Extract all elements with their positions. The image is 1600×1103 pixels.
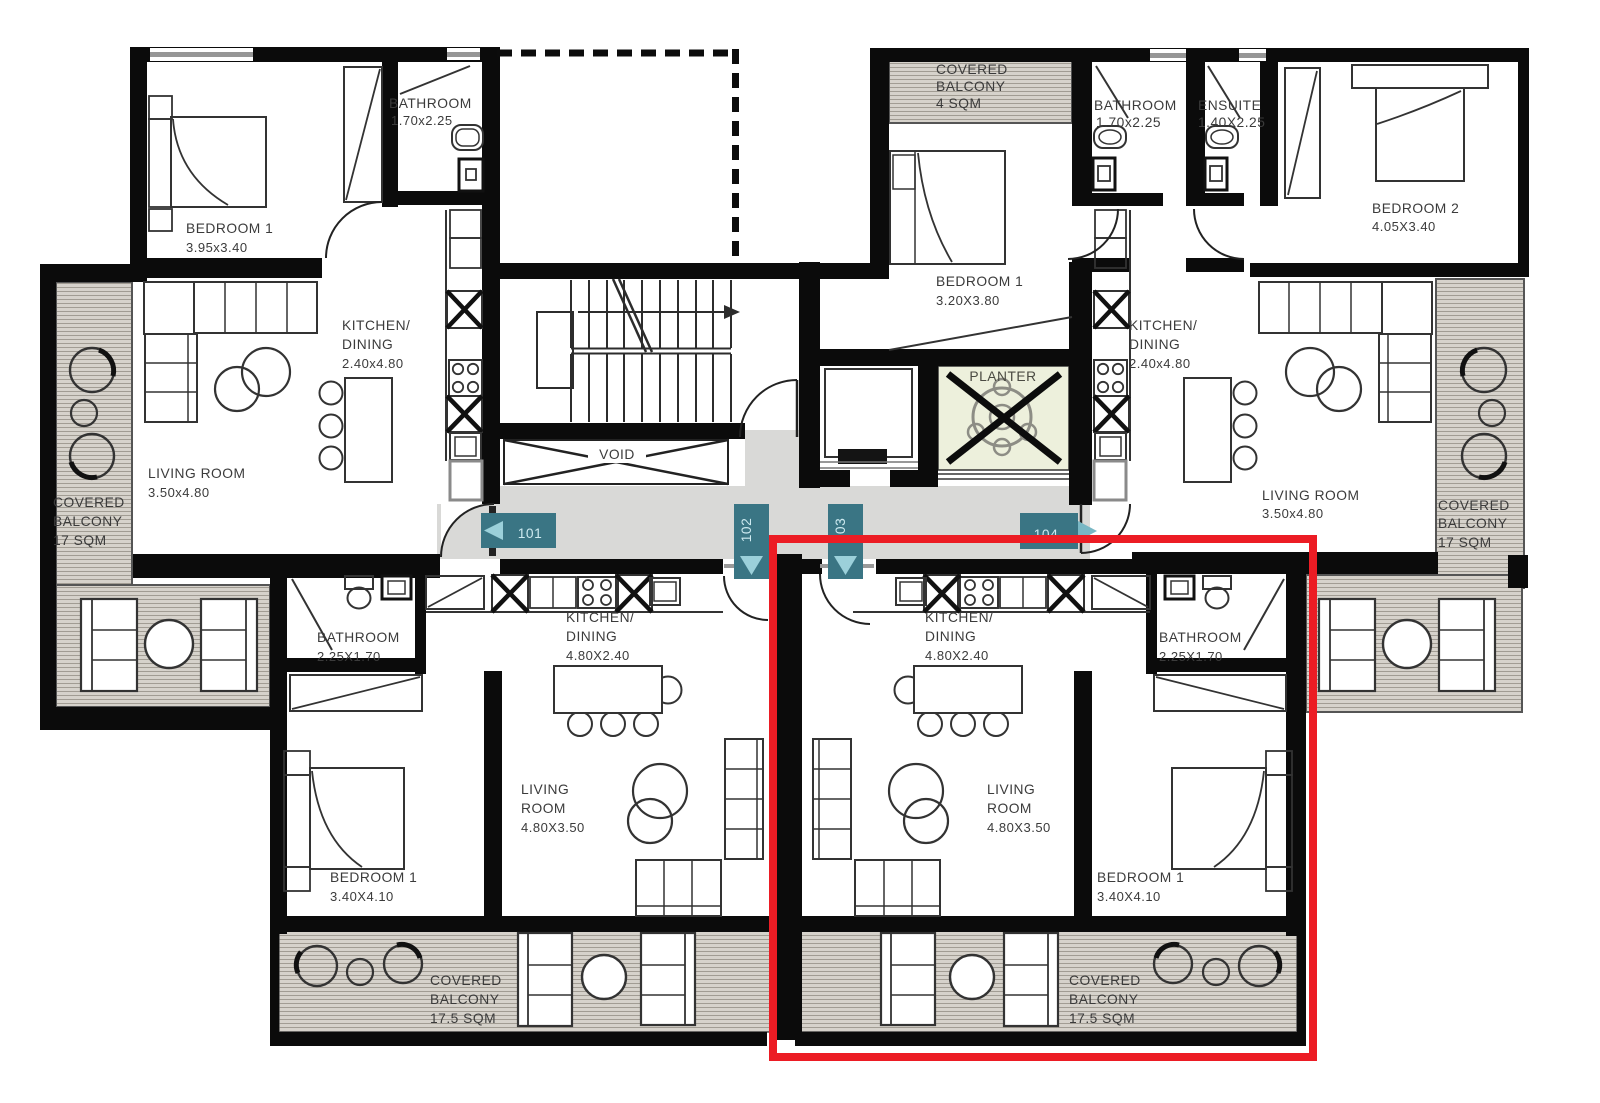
svg-text:BEDROOM 1: BEDROOM 1 xyxy=(186,221,273,236)
svg-text:BEDROOM 1: BEDROOM 1 xyxy=(936,274,1023,289)
svg-text:3.50x4.80: 3.50x4.80 xyxy=(148,485,210,500)
svg-text:3.95x3.40: 3.95x3.40 xyxy=(186,240,248,255)
svg-text:BATHROOM: BATHROOM xyxy=(389,96,472,111)
svg-text:COVERED: COVERED xyxy=(1438,498,1510,513)
svg-text:PLANTER: PLANTER xyxy=(969,369,1036,384)
svg-text:KITCHEN/: KITCHEN/ xyxy=(342,318,410,333)
svg-text:DINING: DINING xyxy=(566,629,617,644)
svg-text:1.70x2.25: 1.70x2.25 xyxy=(1096,115,1161,130)
svg-text:BATHROOM: BATHROOM xyxy=(1094,98,1177,113)
svg-text:BATHROOM: BATHROOM xyxy=(317,630,400,645)
svg-text:KITCHEN/: KITCHEN/ xyxy=(566,610,634,625)
svg-text:4 SQM: 4 SQM xyxy=(936,96,981,111)
svg-text:BEDROOM 2: BEDROOM 2 xyxy=(1372,201,1459,216)
svg-text:ROOM: ROOM xyxy=(987,801,1032,816)
svg-text:LIVING: LIVING xyxy=(987,782,1035,797)
svg-text:BALCONY: BALCONY xyxy=(53,514,122,529)
svg-text:COVERED: COVERED xyxy=(430,973,502,988)
svg-text:17 SQM: 17 SQM xyxy=(53,533,107,548)
svg-text:2.40x4.80: 2.40x4.80 xyxy=(342,356,404,371)
svg-text:ROOM: ROOM xyxy=(521,801,566,816)
svg-text:4.05X3.40: 4.05X3.40 xyxy=(1372,219,1436,234)
svg-text:3.50x4.80: 3.50x4.80 xyxy=(1262,506,1324,521)
svg-text:101: 101 xyxy=(518,526,543,541)
svg-text:KITCHEN/: KITCHEN/ xyxy=(1129,318,1197,333)
svg-text:KITCHEN/: KITCHEN/ xyxy=(925,610,993,625)
svg-text:BALCONY: BALCONY xyxy=(1069,992,1138,1007)
svg-text:3.40X4.10: 3.40X4.10 xyxy=(330,889,394,904)
svg-text:1.70x2.25: 1.70x2.25 xyxy=(391,113,453,128)
svg-text:4.80X2.40: 4.80X2.40 xyxy=(925,648,989,663)
svg-text:COVERED: COVERED xyxy=(936,62,1008,77)
svg-text:COVERED: COVERED xyxy=(53,495,125,510)
svg-text:2.40x4.80: 2.40x4.80 xyxy=(1129,356,1191,371)
svg-text:4.80X2.40: 4.80X2.40 xyxy=(566,648,630,663)
svg-text:2.25X1.70: 2.25X1.70 xyxy=(1159,649,1223,664)
svg-text:BATHROOM: BATHROOM xyxy=(1159,630,1242,645)
svg-text:102: 102 xyxy=(739,518,754,543)
svg-text:4.80X3.50: 4.80X3.50 xyxy=(521,820,585,835)
svg-text:LIVING ROOM: LIVING ROOM xyxy=(148,466,246,481)
svg-text:1.40X2.25: 1.40X2.25 xyxy=(1198,115,1265,130)
svg-text:DINING: DINING xyxy=(342,337,393,352)
svg-text:BALCONY: BALCONY xyxy=(1438,516,1507,531)
svg-text:ENSUITE: ENSUITE xyxy=(1198,98,1261,113)
svg-text:BEDROOM 1: BEDROOM 1 xyxy=(330,870,417,885)
svg-text:17.5 SQM: 17.5 SQM xyxy=(430,1011,496,1026)
svg-text:BALCONY: BALCONY xyxy=(936,79,1005,94)
svg-text:DINING: DINING xyxy=(925,629,976,644)
svg-text:17 SQM: 17 SQM xyxy=(1438,535,1492,550)
svg-text:3.20X3.80: 3.20X3.80 xyxy=(936,293,1000,308)
svg-text:4.80X3.50: 4.80X3.50 xyxy=(987,820,1051,835)
svg-text:3.40X4.10: 3.40X4.10 xyxy=(1097,889,1161,904)
svg-text:BEDROOM 1: BEDROOM 1 xyxy=(1097,870,1184,885)
svg-text:COVERED: COVERED xyxy=(1069,973,1141,988)
svg-text:BALCONY: BALCONY xyxy=(430,992,499,1007)
svg-text:2.25X1.70: 2.25X1.70 xyxy=(317,649,381,664)
svg-text:LIVING ROOM: LIVING ROOM xyxy=(1262,488,1360,503)
svg-text:LIVING: LIVING xyxy=(521,782,569,797)
svg-text:17.5 SQM: 17.5 SQM xyxy=(1069,1011,1135,1026)
svg-text:DINING: DINING xyxy=(1129,337,1180,352)
svg-text:VOID: VOID xyxy=(599,447,635,462)
